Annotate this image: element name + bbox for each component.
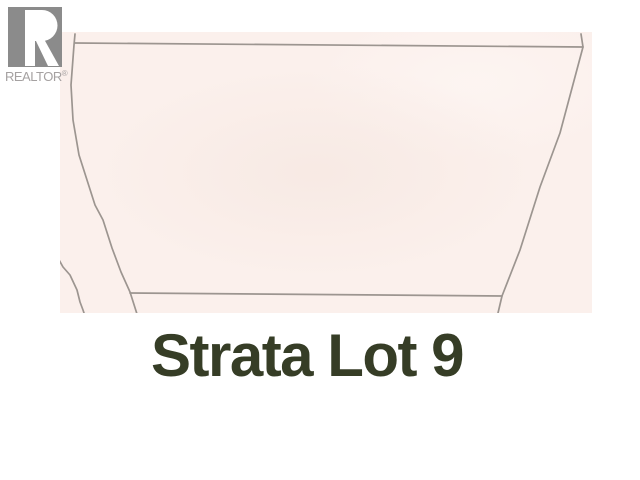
parcel-line-top-boundary [75,43,583,47]
lot-title: Strata Lot 9 [0,325,627,387]
realtor-logo: REALTOR® [8,7,62,67]
listing-image: REALTOR® Strata Lot 9 [0,0,640,480]
registered-trademark-symbol: ® [62,69,68,78]
realtor-wordmark: REALTOR® [5,69,77,84]
parcel-line-bottom-boundary [130,293,502,296]
parcel-line-adjacent-lot-boundary [60,258,84,313]
parcel-line-left-boundary [71,34,137,313]
parcel-line-right-boundary [498,34,583,313]
parcel-map [60,32,592,313]
realtor-wordmark-text: REALTOR [5,69,62,84]
realtor-block-r-icon [8,7,62,67]
parcel-outline-drawing [60,32,592,313]
